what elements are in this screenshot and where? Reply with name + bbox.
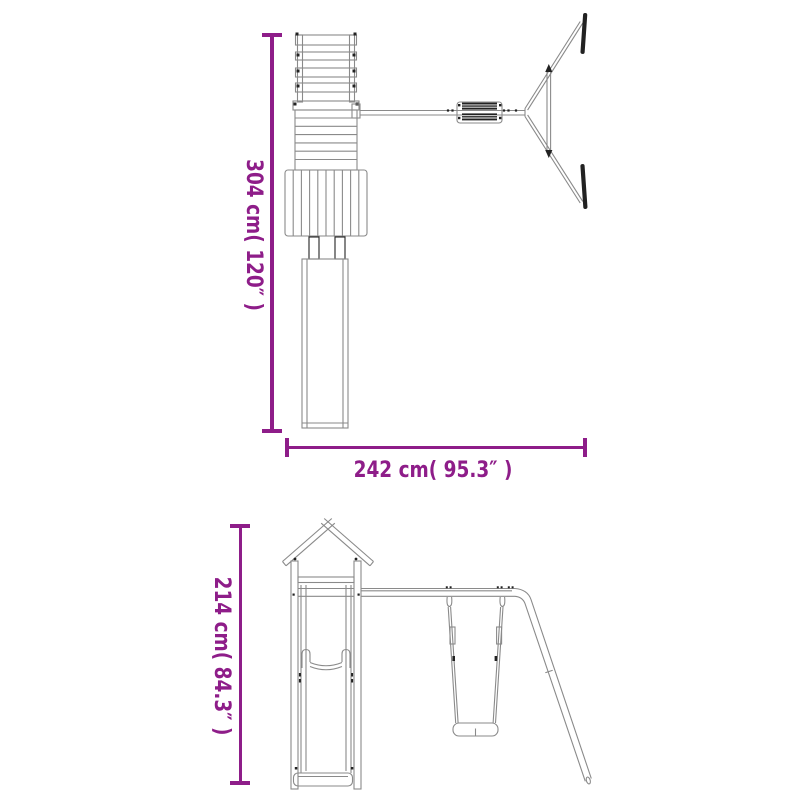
roof-side xyxy=(283,519,374,566)
swing-beam-side xyxy=(361,586,515,596)
slide-front-side xyxy=(294,585,354,786)
plan-width-dim-cap-right xyxy=(583,438,587,457)
product-dimension-diagram: 304 cm( 120″ ) 242 cm( 95.3″ ) xyxy=(0,0,800,800)
plan-width-dim-label: 242 cm( 95.3″ ) xyxy=(354,460,513,482)
side-view-drawing xyxy=(275,515,600,800)
swing-side xyxy=(447,597,505,736)
slide-top xyxy=(302,237,348,428)
swing-a-frame-top xyxy=(525,13,588,209)
swing-seat-top xyxy=(457,102,502,123)
climbing-ladder-top xyxy=(293,33,359,111)
roof-top xyxy=(285,170,367,236)
plan-height-dim-line xyxy=(270,33,274,433)
plan-view-drawing xyxy=(280,5,600,435)
platform-top xyxy=(295,110,357,170)
side-height-dim-label: 214 cm( 84.3″ ) xyxy=(210,577,232,736)
side-height-dim-line xyxy=(239,524,243,785)
a-frame-leg-side xyxy=(515,589,591,785)
plan-width-dim-line xyxy=(285,446,587,450)
plan-height-dim-label: 304 cm( 120″ ) xyxy=(242,159,264,311)
plan-height-dim-cap-bottom xyxy=(262,429,282,433)
side-height-dim-cap-bottom xyxy=(230,781,250,785)
